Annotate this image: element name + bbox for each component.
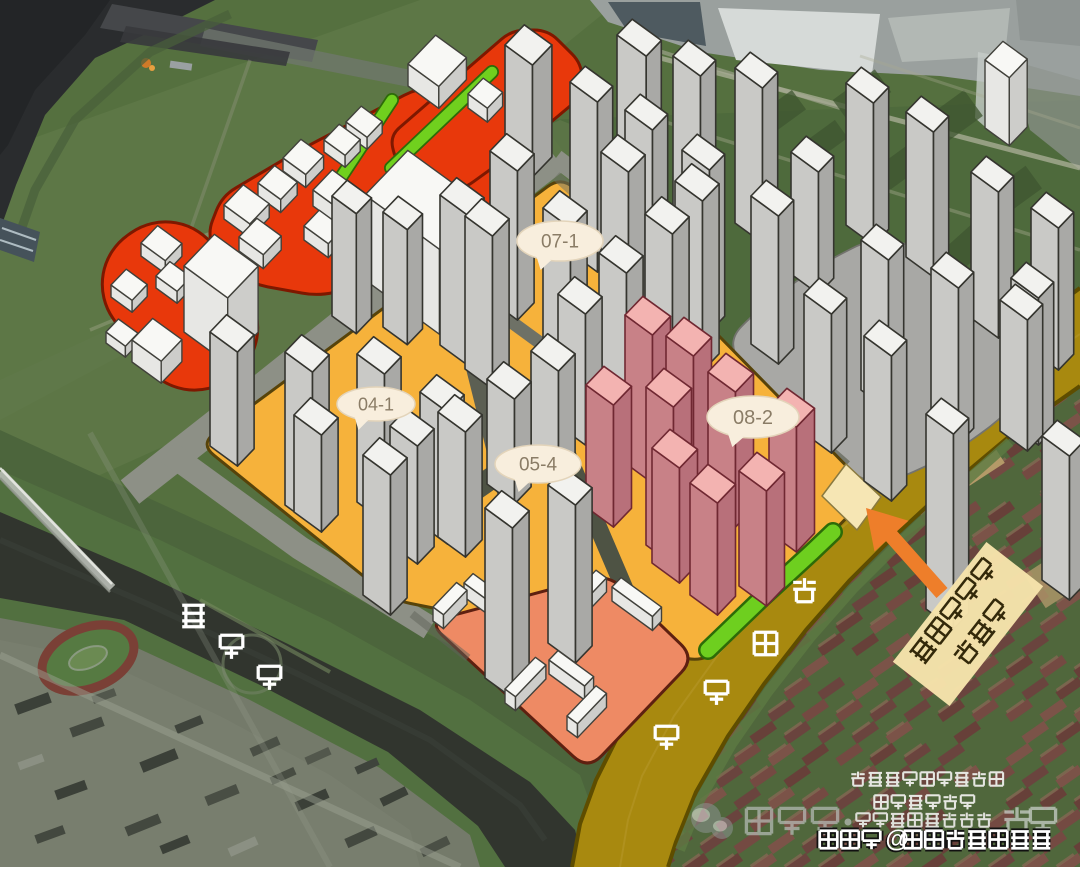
svg-text:04-1: 04-1 bbox=[358, 394, 394, 414]
svg-text:07-1: 07-1 bbox=[541, 232, 579, 253]
svg-text:08-2: 08-2 bbox=[733, 407, 773, 429]
svg-text:05-4: 05-4 bbox=[519, 455, 557, 476]
